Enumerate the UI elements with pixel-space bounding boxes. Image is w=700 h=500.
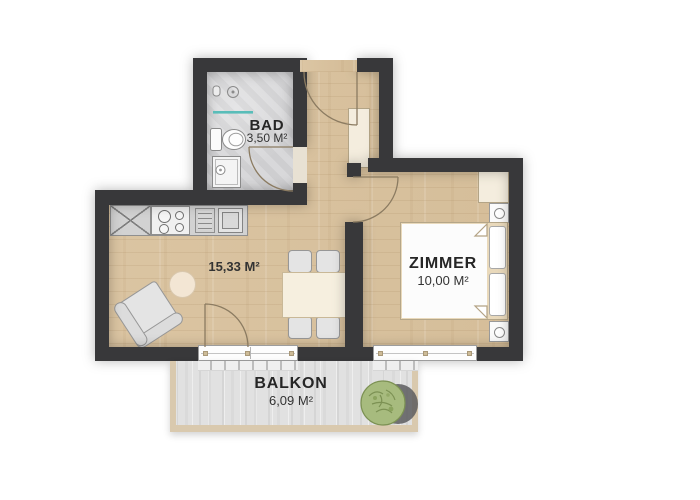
wall-bath-right-stub [293, 183, 307, 205]
room-label-zimmer: ZIMMER [409, 255, 477, 273]
window-frame-line [250, 347, 251, 359]
wall-bedroom-top [368, 158, 523, 172]
wall-living-bedroom-divider [345, 222, 363, 361]
balcony-door-sill [198, 361, 298, 371]
wall-hall-right [379, 58, 393, 158]
wall-living-top [95, 190, 307, 205]
bedroom-window-sill [373, 361, 418, 371]
wall-top-left [193, 58, 300, 72]
entry-door-threshold [300, 60, 357, 72]
window-frame-mark [378, 351, 383, 356]
wall-door-stub [347, 163, 361, 177]
room-area-living: 15,33 M² [208, 259, 259, 274]
window-frame-mark [289, 351, 294, 356]
wall-right [509, 158, 523, 361]
window-frame-mark [467, 351, 472, 356]
window-frame-mark [203, 351, 208, 356]
wall-left [95, 190, 109, 361]
room-area-zimmer: 10,00 M² [417, 273, 468, 288]
bath-door-threshold [293, 147, 307, 183]
window-frame-mark [245, 351, 250, 356]
room-area-bad: 3,50 M² [247, 131, 288, 145]
wall-bath-left [193, 58, 207, 205]
room-label-balkon: BALKON [254, 375, 327, 393]
room-area-balkon: 6,09 M² [269, 393, 313, 408]
balcony-door-window [198, 345, 298, 361]
window-frame-mark [423, 351, 428, 356]
bedroom-window [373, 345, 477, 361]
floor-plan: BAD 3,50 M² 15,33 M² ZIMMER 10,00 M² BAL… [0, 0, 700, 500]
